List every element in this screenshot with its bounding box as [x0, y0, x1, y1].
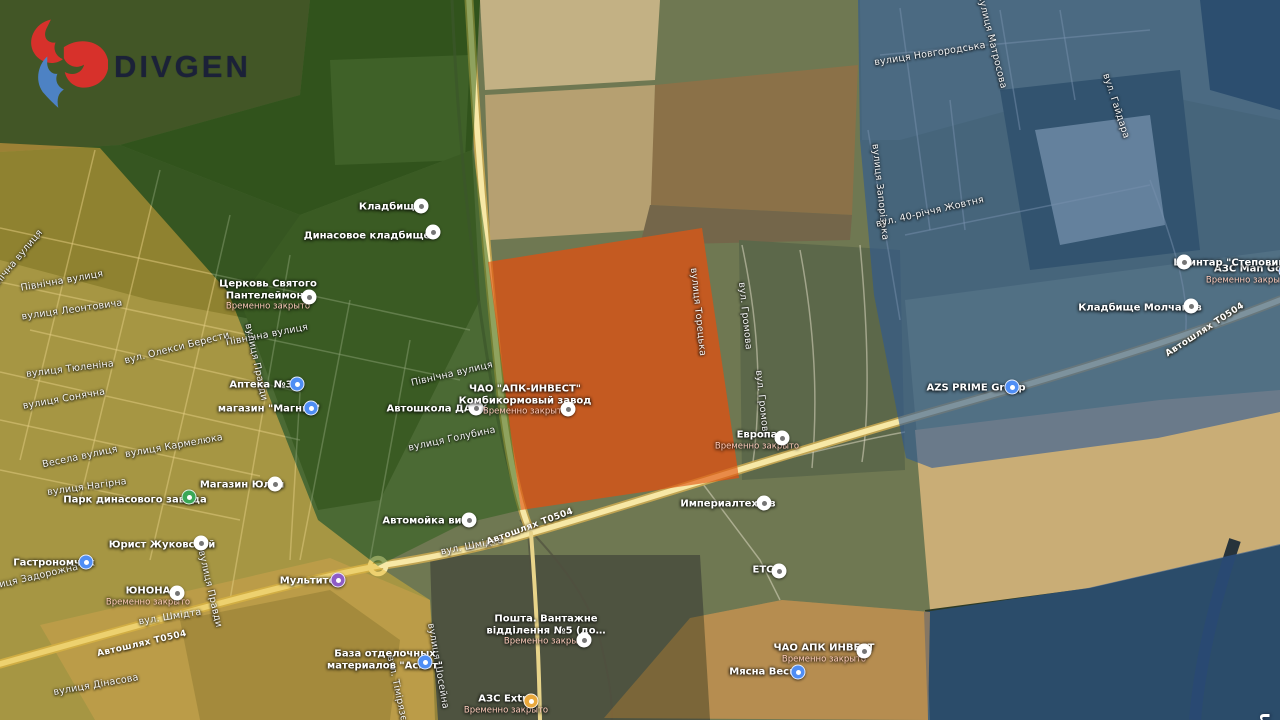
poi-pin[interactable]	[791, 665, 806, 680]
poi-pin[interactable]	[194, 536, 209, 551]
poi-pin[interactable]	[757, 496, 772, 511]
map-canvas[interactable]: DIVGEN Канал DIVGEN | @divgen Північна в…	[0, 0, 1280, 720]
poi-label: Кладбище	[359, 201, 421, 213]
poi-label: ЕТС	[753, 564, 774, 576]
poi-pin[interactable]	[304, 401, 319, 416]
poi-label: Динасовое кладбище	[304, 230, 431, 242]
poi-pin[interactable]	[561, 402, 576, 417]
poi-pin[interactable]	[1177, 255, 1192, 270]
poi-pin[interactable]	[857, 644, 872, 659]
poi-pin[interactable]	[775, 431, 790, 446]
zone-orange-center	[488, 228, 739, 510]
divgen-logo-icon	[16, 10, 108, 110]
divgen-logo: DIVGEN	[16, 10, 251, 110]
poi-pin[interactable]	[1005, 380, 1020, 395]
poi-pin[interactable]	[418, 655, 433, 670]
poi-pin[interactable]	[772, 564, 787, 579]
poi-pin[interactable]	[414, 199, 429, 214]
zone-blue-east-upper	[858, 0, 1280, 468]
poi-pin[interactable]	[302, 290, 317, 305]
poi-pin[interactable]	[426, 225, 441, 240]
poi-pin[interactable]	[1184, 299, 1199, 314]
poi-pin[interactable]	[182, 490, 197, 505]
poi-pin[interactable]	[331, 573, 346, 588]
poi-pin[interactable]	[268, 477, 283, 492]
channel-watermark: Канал DIVGEN | @divgen	[1254, 712, 1274, 720]
poi-pin[interactable]	[79, 555, 94, 570]
poi-pin[interactable]	[524, 694, 539, 709]
poi-pin[interactable]	[577, 633, 592, 648]
poi-label: Аптека №3	[229, 379, 292, 391]
poi-pin[interactable]	[290, 377, 305, 392]
divgen-logo-text: DIVGEN	[114, 49, 251, 85]
poi-pin[interactable]	[170, 586, 185, 601]
poi-pin[interactable]	[462, 513, 477, 528]
